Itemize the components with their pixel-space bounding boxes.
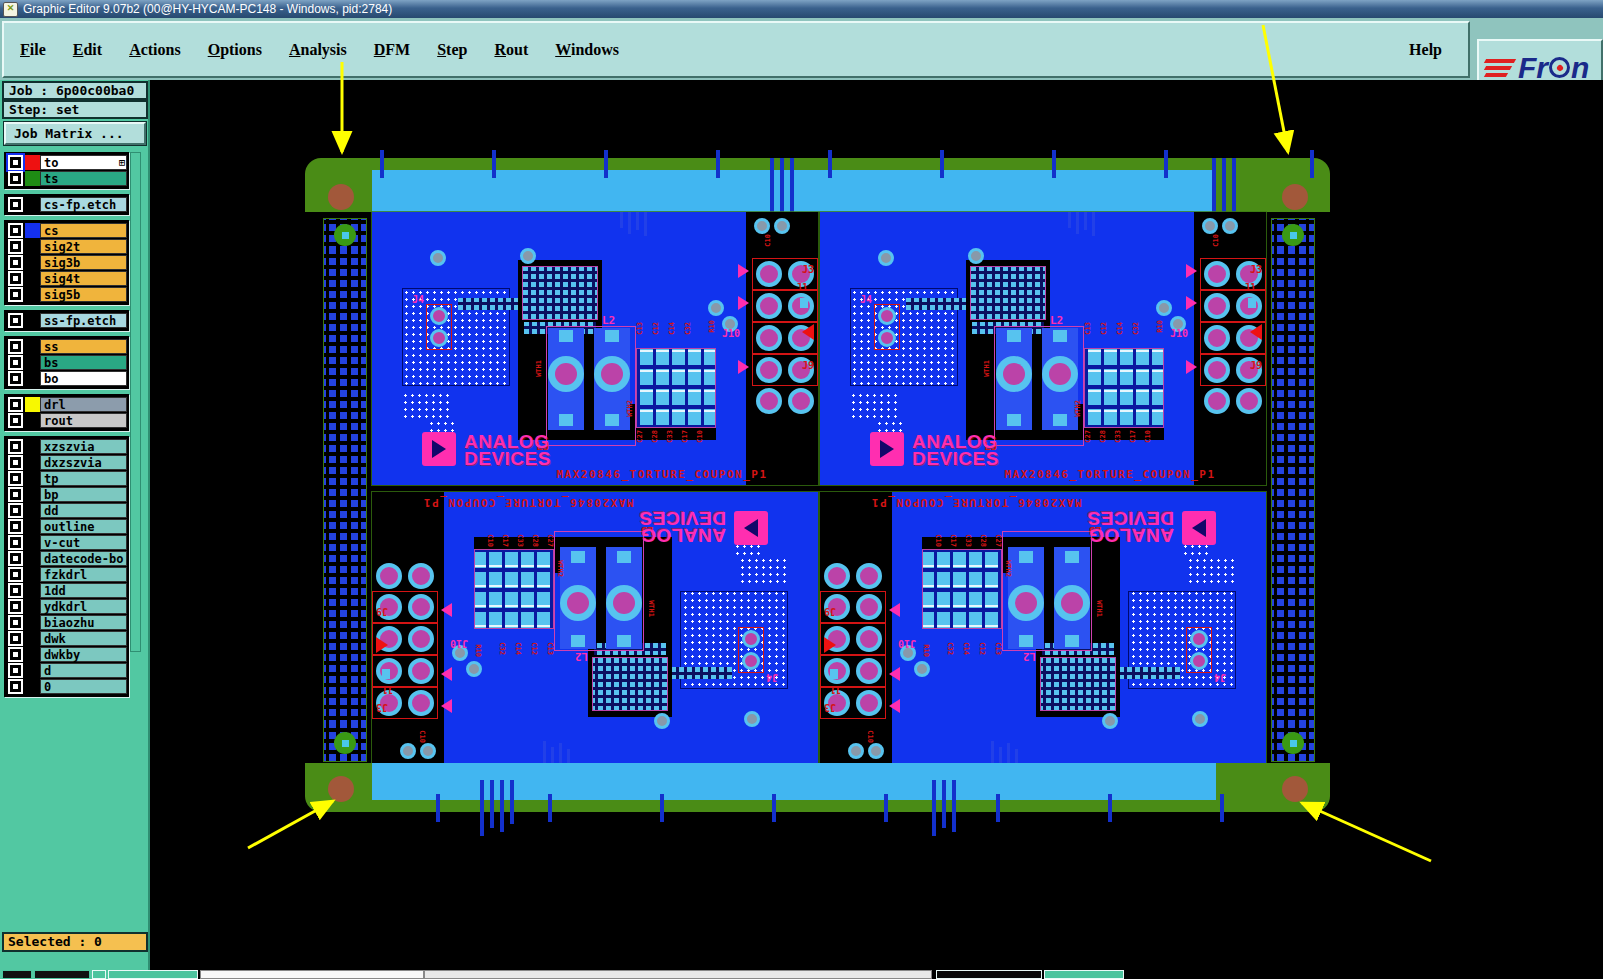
layer-visibility-checkbox[interactable]	[8, 663, 23, 678]
layer-color-swatch[interactable]	[25, 599, 40, 614]
cap-ref-label: C28	[531, 534, 539, 547]
layer-color-swatch[interactable]	[25, 171, 40, 186]
test-pad	[848, 743, 864, 759]
polarity-triangle-icon	[1186, 296, 1197, 310]
cap-pad	[382, 669, 390, 679]
layer-name: xzszvia	[44, 440, 95, 454]
clipped-widget	[92, 970, 106, 979]
trace-drop	[942, 780, 946, 828]
cap-ref-label: C13	[636, 322, 644, 335]
layer-name: rout	[44, 414, 73, 428]
cap-labels-bottom: C27C28C33C17C10	[1084, 430, 1164, 443]
test-pad	[1202, 218, 1218, 234]
inductor-pad	[571, 635, 585, 647]
menu-item[interactable]: Analysis	[289, 41, 347, 59]
layer-group: drl⊞ rout⊞	[4, 394, 129, 431]
polarity-triangle-icon	[441, 667, 452, 681]
clipped-widget	[1044, 970, 1124, 979]
layer-row[interactable]: cs-fp.etch⊞	[6, 197, 127, 212]
rail-tick	[772, 794, 776, 822]
polarity-triangle-icon	[441, 603, 452, 617]
capacitor-bank	[636, 348, 716, 428]
layer-name: biaozhu	[44, 616, 95, 630]
inductor-pad	[1007, 330, 1021, 342]
cap-labels-top: C13C12C14C32	[636, 322, 702, 335]
polarity-triangle-icon	[824, 637, 836, 653]
clipped-widget	[424, 970, 932, 979]
layer-color-swatch[interactable]	[25, 287, 40, 302]
layer-color-swatch[interactable]	[25, 439, 40, 454]
test-pad	[1192, 711, 1208, 727]
unlabeled-pads	[824, 563, 882, 589]
layer-color-swatch[interactable]	[25, 471, 40, 486]
j3-label: J3	[1250, 264, 1262, 275]
fiducial-top-right	[1282, 184, 1308, 210]
layer-color-swatch[interactable]	[25, 487, 40, 502]
cap-ref-label: C10	[1144, 430, 1152, 443]
layer-row[interactable]: fzkdrl⊞	[6, 567, 127, 582]
fiducial-bottom-right	[1282, 776, 1308, 802]
menu-item[interactable]: DFM	[374, 41, 410, 59]
layer-visibility-checkbox[interactable]	[8, 583, 23, 598]
cap-ref-label: C28	[651, 430, 659, 443]
inductor-pad	[617, 551, 631, 563]
menu-item[interactable]: Rout	[494, 41, 528, 59]
layer-visibility-checkbox[interactable]	[8, 397, 23, 412]
r10-label: R10	[1156, 320, 1164, 333]
inductor-body	[606, 585, 642, 621]
test-pad	[708, 300, 724, 316]
cap-ref-label: C32	[498, 642, 506, 655]
cap-ref-label: C10	[696, 430, 704, 443]
layer-name: 1dd	[44, 584, 66, 598]
layer-row[interactable]: sig2t⊞	[6, 239, 127, 254]
layer-visibility-checkbox[interactable]	[8, 155, 23, 170]
strip-fiducial	[334, 732, 356, 754]
rail-tick	[1220, 794, 1224, 822]
layer-color-swatch[interactable]	[25, 663, 40, 678]
layer-color-swatch[interactable]	[25, 339, 40, 354]
board: WTH1 WTH2 L2 L3 C13C12C14C32 R10 C27C28C…	[372, 492, 818, 765]
fiducial-bottom-left	[328, 776, 354, 802]
board-title: MAX20846_TORTURE_COUPON_P1	[826, 496, 1126, 509]
test-pad	[878, 250, 894, 266]
app-icon: ✕	[3, 2, 18, 17]
test-pad	[430, 250, 446, 266]
trace	[644, 212, 647, 236]
layer-color-swatch[interactable]	[25, 371, 40, 386]
layer-color-swatch[interactable]	[25, 647, 40, 662]
unlabeled-pads	[756, 388, 814, 414]
via-test-field	[1188, 559, 1236, 585]
cap-ref-label: C14	[1116, 322, 1124, 335]
layer-row[interactable]: bo⊞	[6, 371, 127, 386]
layer-visibility-checkbox[interactable]	[8, 371, 23, 386]
layer-list-scrollbar[interactable]	[130, 152, 141, 652]
layer-visibility-checkbox[interactable]	[8, 679, 23, 694]
trace	[1068, 212, 1071, 228]
test-pad	[1102, 713, 1118, 729]
layer-row[interactable]: outline⊞	[6, 519, 127, 534]
trace-drop	[500, 780, 504, 832]
layer-color-swatch[interactable]	[25, 535, 40, 550]
test-pad	[754, 218, 770, 234]
trace	[628, 212, 631, 234]
trace-drop	[490, 780, 494, 828]
layer-row[interactable]: sig5b⊞	[6, 287, 127, 302]
layer-row[interactable]: ss⊞	[6, 339, 127, 354]
layer-visibility-checkbox[interactable]	[8, 287, 23, 302]
layer-group: cs⊞ sig2t⊞ sig3b⊞ sig4t⊞ sig5b⊞	[4, 220, 129, 305]
rail-tick	[1052, 150, 1056, 178]
cap-ref-label: C14	[668, 322, 676, 335]
job-matrix-button[interactable]: Job Matrix ...	[4, 122, 146, 145]
layer-visibility-checkbox[interactable]	[8, 271, 23, 286]
rail-tick	[940, 150, 944, 178]
test-pad	[400, 743, 416, 759]
layer-row[interactable]: ts⊞	[6, 171, 127, 186]
logo-speed-lines-icon	[1485, 59, 1515, 77]
j3-label: J3	[802, 264, 814, 275]
layer-name: d	[44, 664, 51, 678]
trace-drop	[952, 780, 956, 832]
layer-group: ss⊞ bs⊞ bo⊞	[4, 336, 129, 389]
c10-label: C10	[866, 730, 874, 743]
menu-row: FileEditActionsOptionsAnalysisDFMStepRou…	[0, 18, 1603, 80]
via-coupon-strip-right	[1271, 218, 1315, 762]
cap-labels-bottom: C27C28C33C17C10	[922, 534, 1002, 547]
menu-item[interactable]: Edit	[73, 41, 102, 59]
layer-visibility-checkbox[interactable]	[8, 567, 23, 582]
j3-label: J3	[824, 702, 836, 713]
trace	[1092, 212, 1095, 236]
layer-name: dwk	[44, 632, 66, 646]
j4-label: J4	[766, 672, 778, 683]
layer-row[interactable]: sig3b⊞	[6, 255, 127, 270]
test-pad	[1222, 218, 1238, 234]
c10-label: C10	[418, 730, 426, 743]
j10-label: J10	[722, 328, 740, 339]
polarity-triangle-icon	[889, 667, 900, 681]
layer-name: 0	[44, 680, 51, 694]
panel-cyan-bar-bottom	[372, 763, 1216, 800]
layer-row[interactable]: ydkdrl⊞	[6, 599, 127, 614]
layer-visibility-checkbox[interactable]	[8, 599, 23, 614]
polarity-triangle-icon	[1186, 360, 1197, 374]
cap-ref-label: C17	[1129, 430, 1137, 443]
layer-visibility-checkbox[interactable]	[8, 197, 23, 212]
menu-item-help[interactable]: Help	[1409, 41, 1442, 59]
polarity-triangle-icon	[738, 296, 749, 310]
cap-ref-label: C27	[546, 534, 554, 547]
layer-row[interactable]: dd⊞	[6, 503, 127, 518]
layer-visibility-checkbox[interactable]	[8, 171, 23, 186]
layer-visibility-checkbox[interactable]	[8, 631, 23, 646]
wth1-label: WTH1	[983, 360, 991, 377]
j4-pads	[738, 627, 764, 673]
layer-color-swatch[interactable]	[25, 255, 40, 270]
layer-row[interactable]: cs⊞	[6, 223, 127, 238]
layer-visibility-checkbox[interactable]	[8, 487, 23, 502]
clipped-widget	[2, 970, 32, 979]
layer-row[interactable]: 0⊞	[6, 679, 127, 694]
layer-name: bs	[44, 356, 58, 370]
trace	[1076, 212, 1079, 234]
layer-group: to⊞ ts⊞	[4, 152, 129, 189]
layer-color-swatch[interactable]	[25, 679, 40, 694]
analog-devices-logo-icon	[734, 511, 768, 545]
test-pad	[466, 661, 482, 677]
menu-item[interactable]: Windows	[555, 41, 619, 59]
clipped-widget	[34, 970, 90, 979]
ic-cluster	[522, 266, 598, 320]
layer-row[interactable]: dxzszvia⊞	[6, 455, 127, 470]
layer-row[interactable]: biaozhu⊞	[6, 615, 127, 630]
layer-name: ss-fp.etch	[44, 314, 116, 328]
j4-label: J4	[1214, 672, 1226, 683]
layer-row[interactable]: bs⊞	[6, 355, 127, 370]
layer-visibility-checkbox[interactable]	[8, 519, 23, 534]
layer-visibility-checkbox[interactable]	[8, 551, 23, 566]
inductor-pad	[1053, 414, 1067, 426]
layer-visibility-checkbox[interactable]	[8, 413, 23, 428]
layer-row[interactable]: to⊞	[6, 155, 127, 170]
polarity-triangle-icon	[441, 699, 452, 713]
layer-visibility-checkbox[interactable]	[8, 223, 23, 238]
cap-ref-label: C32	[1132, 322, 1140, 335]
via-test-field	[402, 392, 450, 418]
rail-tick	[996, 794, 1000, 822]
layer-name: to	[44, 156, 58, 170]
layer-name: cs-fp.etch	[44, 198, 116, 212]
layer-color-swatch[interactable]	[25, 271, 40, 286]
inductor-body	[1008, 585, 1044, 621]
cap-ref-label: C12	[978, 642, 986, 655]
layer-color-swatch[interactable]	[25, 519, 40, 534]
wth2-label: WTH2	[1074, 400, 1082, 417]
cap-labels-top: C13C12C14C32	[936, 642, 1002, 655]
layer-row[interactable]: sig4t⊞	[6, 271, 127, 286]
inductor-pad	[559, 414, 573, 426]
layer-name: fzkdrl	[44, 568, 87, 582]
cap-ref-label: C27	[1084, 430, 1092, 443]
wth1-label: WTH1	[647, 600, 655, 617]
cap-ref-label: C28	[1099, 430, 1107, 443]
capacitor-bank	[922, 549, 1002, 629]
cap-ref-label: C14	[962, 642, 970, 655]
rail-tick	[436, 794, 440, 822]
j9-label: J9	[802, 360, 814, 371]
test-pad	[744, 711, 760, 727]
ic-cluster	[592, 657, 668, 711]
analog-devices-logo-text: ANALOGDEVICES	[912, 433, 999, 467]
layer-color-swatch[interactable]	[25, 503, 40, 518]
fiducial-top-left	[328, 184, 354, 210]
pad-row	[906, 298, 966, 310]
cap-pad	[800, 298, 808, 308]
layer-row[interactable]: v-cut⊞	[6, 535, 127, 550]
trace	[1084, 212, 1087, 230]
layer-visibility-checkbox[interactable]	[8, 239, 23, 254]
layer-color-swatch[interactable]	[25, 455, 40, 470]
layer-visibility-checkbox[interactable]	[8, 615, 23, 630]
layer-color-swatch[interactable]	[25, 397, 40, 412]
j10-label: J10	[450, 638, 468, 649]
rail-tick	[380, 150, 384, 178]
window-title: Graphic Editor 9.07b2 (00@HY-HYCAM-PC148…	[23, 2, 392, 16]
j9-label: J9	[824, 606, 836, 617]
layer-name: v-cut	[44, 536, 80, 550]
job-field[interactable]: Job : 6p00c00ba0	[2, 81, 148, 100]
inductor-pad	[559, 330, 573, 342]
ic-cluster	[970, 266, 1046, 320]
layer-group: xzszvia⊞ dxzszvia⊞ tp⊞ bp⊞ dd⊞	[4, 436, 129, 697]
via-test-field	[850, 392, 898, 418]
trace-drop	[932, 780, 936, 836]
selected-count: Selected : 0	[2, 932, 148, 952]
layer-visibility-checkbox[interactable]	[8, 439, 23, 454]
inductor-pad	[1019, 635, 1033, 647]
cap-ref-label: C13	[994, 642, 1002, 655]
j4-pads	[426, 304, 452, 350]
layer-row[interactable]: dwkby⊞	[6, 647, 127, 662]
polarity-triangle-icon	[376, 637, 388, 653]
menu-item[interactable]: Step	[437, 41, 467, 59]
c10-label: C10	[1212, 234, 1220, 247]
layer-name: sig2t	[44, 240, 80, 254]
j4-pads	[1186, 627, 1212, 673]
layer-row[interactable]: tp⊞	[6, 471, 127, 486]
layer-row[interactable]: datecode-bo⊞	[6, 551, 127, 566]
cap-ref-label: C27	[994, 534, 1002, 547]
wth1-label: WTH1	[1095, 600, 1103, 617]
layer-name: dwkby	[44, 648, 80, 662]
layer-visibility-checkbox[interactable]	[8, 535, 23, 550]
layer-color-swatch[interactable]	[25, 223, 40, 238]
layer-color-swatch[interactable]	[25, 155, 40, 170]
inductor-pad	[617, 635, 631, 647]
l2-label: L2	[602, 314, 615, 327]
polarity-triangle-icon	[889, 603, 900, 617]
layer-row[interactable]: drl⊞	[6, 397, 127, 412]
menu-item[interactable]: Options	[208, 41, 262, 59]
test-pad	[520, 248, 536, 264]
j1-pads	[1200, 290, 1266, 322]
coupon-board-bottom-right: WTH1 WTH2 L2 L3 C13C12C14C32 R10 C27C28C…	[820, 492, 1266, 765]
inductor-pad	[605, 414, 619, 426]
layer-row[interactable]: xzszvia⊞	[6, 439, 127, 454]
clipped-widget	[936, 970, 1042, 979]
pad-row	[672, 667, 732, 679]
cap-ref-label: C13	[1084, 322, 1092, 335]
c10-label: C10	[764, 234, 772, 247]
rail-tick	[884, 794, 888, 822]
layer-row[interactable]: 1dd⊞	[6, 583, 127, 598]
j9-label: J9	[1250, 360, 1262, 371]
board-title: MAX20846_TORTURE_COUPON_P1	[512, 468, 812, 481]
wth2-label: WTH2	[626, 400, 634, 417]
layer-name: datecode-bo	[44, 552, 123, 566]
rail-tick	[548, 794, 552, 822]
board-title: MAX20846_TORTURE_COUPON_P1	[378, 496, 678, 509]
layer-name: ts	[44, 172, 58, 186]
layer-visibility-checkbox[interactable]	[8, 471, 23, 486]
pcb-canvas[interactable]: WTH1 WTH2 L2 L3 C13C12C14C32 R10 C27C28C…	[150, 80, 1603, 979]
layer-row[interactable]: dwk⊞	[6, 631, 127, 646]
polarity-triangle-icon	[802, 324, 814, 340]
window-titlebar[interactable]: ✕ Graphic Editor 9.07b2 (00@HY-HYCAM-PC1…	[0, 0, 1603, 18]
layer-color-swatch[interactable]	[25, 197, 40, 212]
layer-row[interactable]: bp⊞	[6, 487, 127, 502]
cap-labels-top: C13C12C14C32	[488, 642, 554, 655]
test-pad	[1156, 300, 1172, 316]
sidebar: Job : 6p00c00ba0 Step: set Job Matrix ..…	[0, 80, 150, 979]
layer-color-swatch[interactable]	[25, 583, 40, 598]
cap-ref-label: C14	[514, 642, 522, 655]
menu-item[interactable]: File	[20, 41, 46, 59]
test-pad	[868, 743, 884, 759]
strip-fiducial	[1282, 732, 1304, 754]
layer-color-swatch[interactable]	[25, 239, 40, 254]
rail-tick	[716, 150, 720, 178]
analog-devices-logo-text: ANALOGDEVICES	[464, 433, 551, 467]
j3-label: J3	[376, 702, 388, 713]
step-field[interactable]: Step: set	[2, 100, 148, 119]
layer-name: cs	[44, 224, 58, 238]
layer-visibility-checkbox[interactable]	[8, 339, 23, 354]
cap-ref-label: C33	[1114, 430, 1122, 443]
pad-row	[458, 298, 518, 310]
layer-visibility-checkbox[interactable]	[8, 355, 23, 370]
cap-ref-label: C17	[681, 430, 689, 443]
board: WTH1 WTH2 L2 L3 C13C12C14C32 R10 C27C28C…	[820, 492, 1266, 765]
trace	[620, 212, 623, 228]
layer-visibility-checkbox[interactable]	[8, 255, 23, 270]
polarity-triangle-icon	[1186, 264, 1197, 278]
clipped-widget	[108, 970, 198, 979]
wth2-label: WTH2	[1004, 560, 1012, 577]
polarity-triangle-icon	[1250, 324, 1262, 340]
layer-name: outline	[44, 520, 95, 534]
r10-label: R10	[922, 644, 930, 657]
layer-color-swatch[interactable]	[25, 615, 40, 630]
board: WTH1 WTH2 L2 L3 C13C12C14C32 R10 C27C28C…	[372, 212, 818, 485]
layer-color-swatch[interactable]	[25, 313, 40, 328]
layer-color-swatch[interactable]	[25, 355, 40, 370]
layer-row[interactable]: ss-fp.etch⊞	[6, 313, 127, 328]
menu-item[interactable]: Actions	[129, 41, 181, 59]
via-test-field	[1182, 543, 1210, 557]
layer-name: bp	[44, 488, 58, 502]
layer-visibility-checkbox[interactable]	[8, 313, 23, 328]
analog-devices-logo-icon	[1182, 511, 1216, 545]
layer-color-swatch[interactable]	[25, 551, 40, 566]
j4-pads	[874, 304, 900, 350]
rail-tick	[828, 150, 832, 178]
layer-color-swatch[interactable]	[25, 631, 40, 646]
trace	[991, 741, 994, 765]
coupon-board-top-right: WTH1 WTH2 L2 L3 C13C12C14C32 R10 C27C28C…	[820, 212, 1266, 485]
expand-icon[interactable]: ⊞	[119, 158, 125, 168]
strip-fiducial	[1282, 224, 1304, 246]
layer-row[interactable]: d⊞	[6, 663, 127, 678]
layer-visibility-checkbox[interactable]	[8, 455, 23, 470]
layer-color-swatch[interactable]	[25, 413, 40, 428]
layer-visibility-checkbox[interactable]	[8, 503, 23, 518]
layer-visibility-checkbox[interactable]	[8, 647, 23, 662]
layer-row[interactable]: rout⊞	[6, 413, 127, 428]
layer-color-swatch[interactable]	[25, 567, 40, 582]
